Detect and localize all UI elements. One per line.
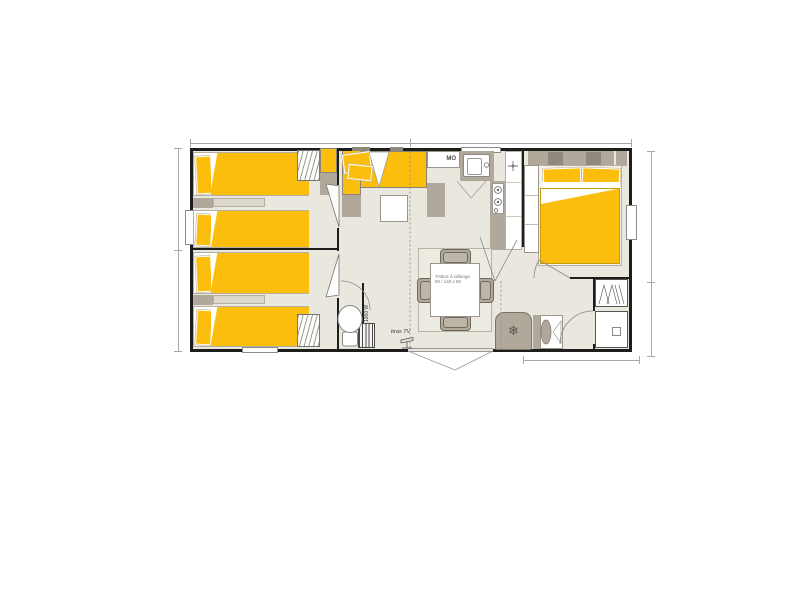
dim-tick (647, 282, 655, 283)
door-wc-arc (341, 281, 370, 310)
vent-cross-icon (508, 161, 518, 171)
tv-bracket-icon (401, 338, 413, 349)
dim-tick (174, 351, 182, 352)
door-bathroom-arc (560, 311, 593, 344)
door-master-entry (480, 237, 517, 281)
window-casement-sofa (369, 152, 389, 187)
dim-tick (190, 139, 191, 147)
floor-plan-page: MO TA (0, 0, 800, 600)
dimension-line-top (190, 143, 632, 144)
dim-tick (174, 250, 182, 251)
dimension-line-right (651, 151, 652, 357)
dim-tick (174, 148, 182, 149)
dim-tick (647, 151, 655, 152)
window-casement-kitchen (457, 181, 486, 198)
plan-linework (190, 148, 632, 378)
dim-tick (410, 139, 411, 147)
dim-tick (639, 356, 640, 364)
washbasin-details (541, 320, 561, 344)
hanging-clothes-icon (599, 285, 624, 304)
door-bedroom2 (326, 254, 339, 297)
faucet-icon (484, 163, 488, 167)
floor-plan: MO TA (190, 148, 632, 352)
entrance-door-swing (408, 351, 493, 370)
dim-tick (647, 356, 655, 357)
door-bedroom1 (326, 184, 339, 227)
dim-tick (631, 139, 632, 147)
toilet (338, 306, 362, 347)
hob-burners-icon (494, 187, 501, 213)
door-master-bottom (534, 260, 570, 278)
